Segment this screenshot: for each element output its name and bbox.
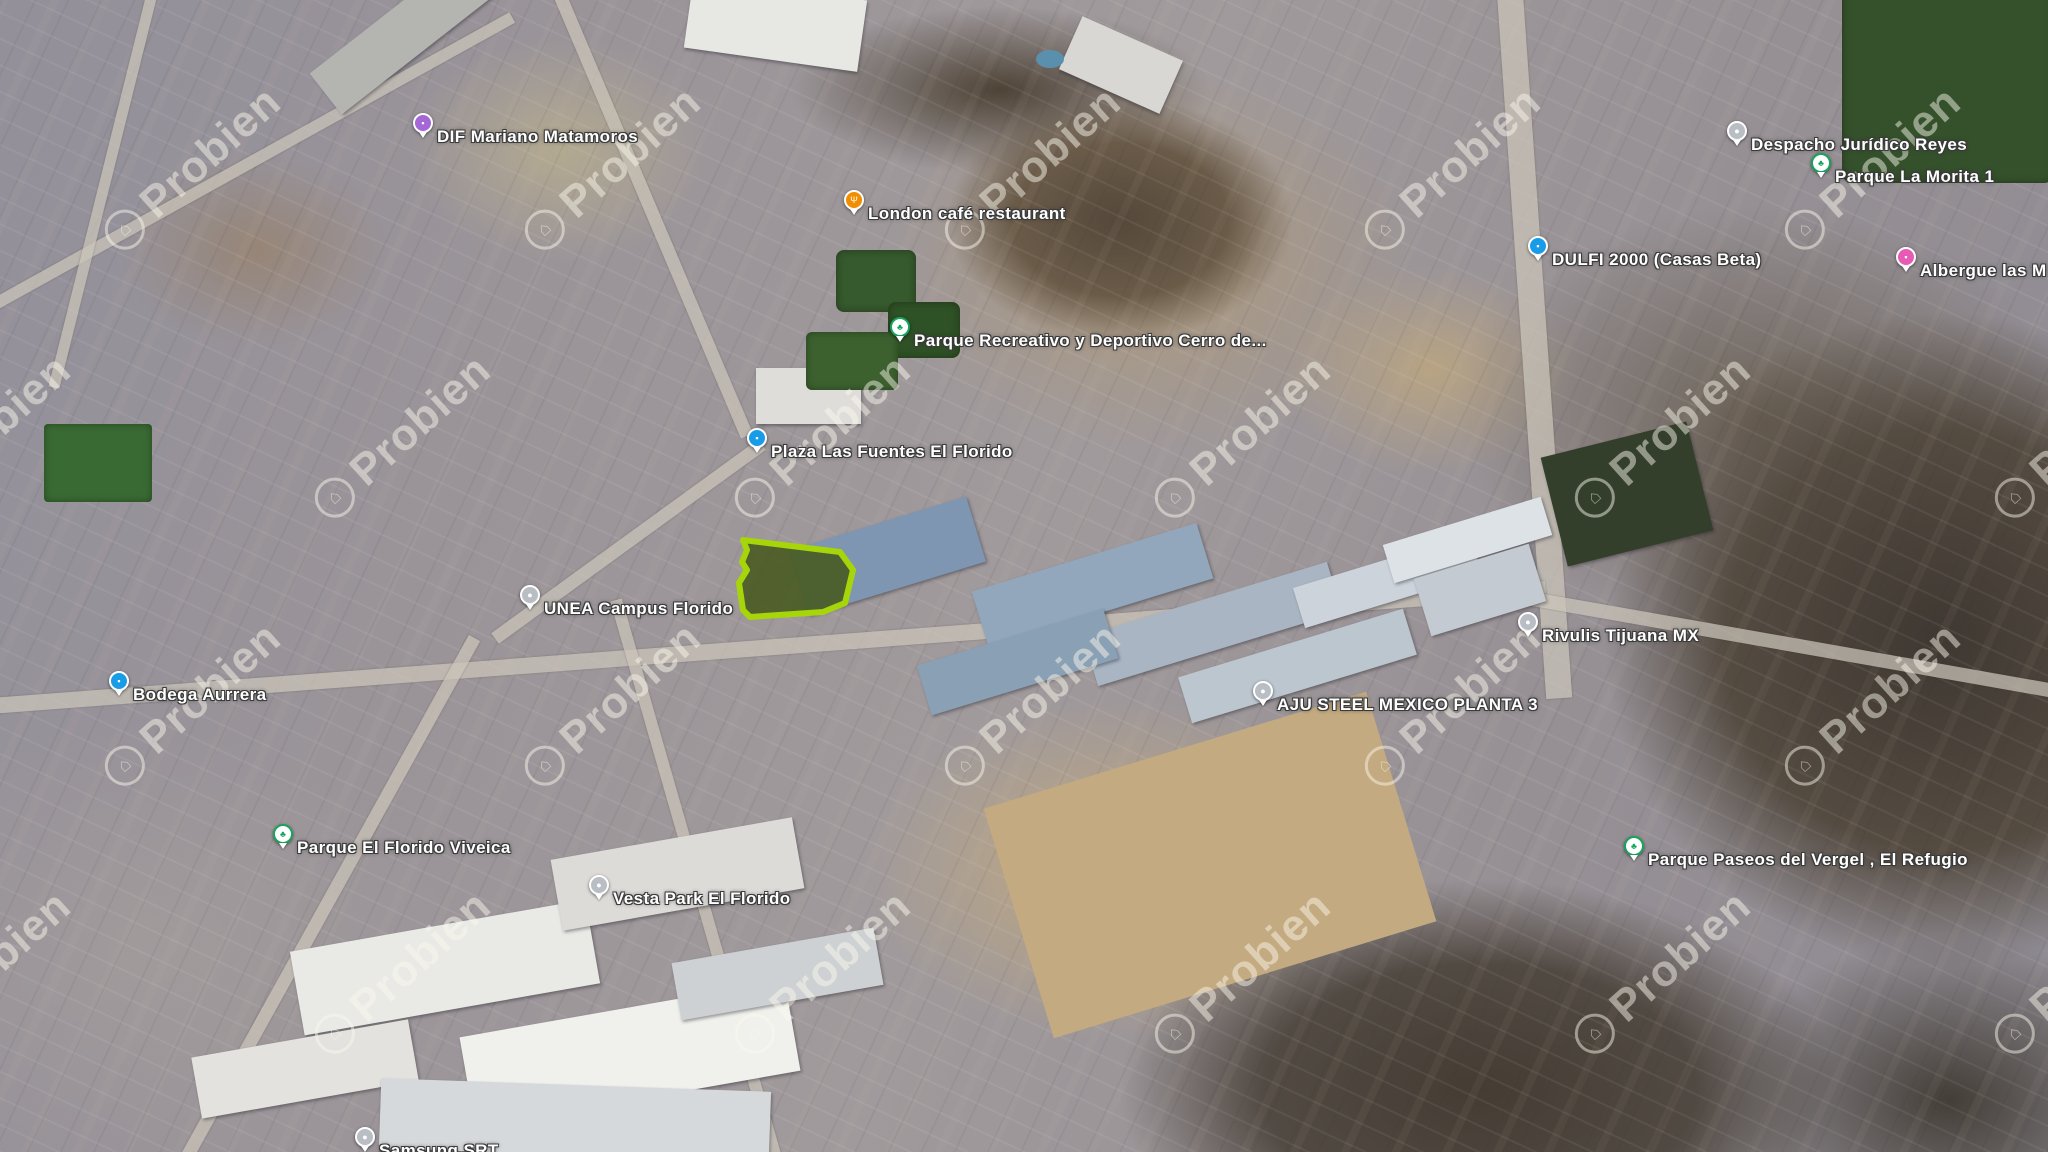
community-pin-icon[interactable]: ▪ — [413, 113, 433, 133]
place-label: London café restaurant — [868, 204, 1066, 224]
business-blue-pin-icon[interactable]: ▪ — [1528, 236, 1548, 256]
pin-pointer — [1733, 140, 1741, 146]
park-pin-icon[interactable]: ♣ — [1624, 836, 1644, 856]
business-pin-icon[interactable]: ● — [355, 1127, 375, 1147]
pin-pointer — [595, 894, 603, 900]
pin-pointer — [361, 1146, 369, 1152]
pin-pointer — [1534, 255, 1542, 261]
business-pin-icon[interactable]: ● — [1253, 681, 1273, 701]
markers-layer: ▪DIF Mariano MatamorosΨLondon café resta… — [0, 0, 2048, 1152]
park-pin-icon[interactable]: ♣ — [273, 824, 293, 844]
place-label: Vesta Park El Florido — [613, 889, 791, 909]
place-label: UNEA Campus Florido — [544, 599, 733, 619]
school-pin-icon[interactable]: ● — [520, 585, 540, 605]
place-label: DIF Mariano Matamoros — [437, 127, 638, 147]
place-label: Parque Paseos del Vergel , El Refugio — [1648, 850, 1968, 870]
place-label: DULFI 2000 (Casas Beta) — [1552, 250, 1762, 270]
place-label: Samsung SRT — [379, 1141, 499, 1152]
shopping-pin-icon[interactable]: ▪ — [747, 428, 767, 448]
pin-pointer — [1902, 266, 1910, 272]
place-label: Rivulis Tijuana MX — [1542, 626, 1699, 646]
park-pin-icon[interactable]: ♣ — [890, 317, 910, 337]
pin-pointer — [1259, 700, 1267, 706]
lodging-pin-icon[interactable]: ▪ — [1896, 247, 1916, 267]
place-label: AJU STEEL MEXICO PLANTA 3 — [1277, 695, 1538, 715]
place-label: Plaza Las Fuentes El Florido — [771, 442, 1013, 462]
pin-pointer — [753, 447, 761, 453]
place-label: Parque Recreativo y Deportivo Cerro de..… — [914, 331, 1267, 351]
satellite-map[interactable]: ⌂Probien⌂Probien⌂Probien⌂Probien⌂Probien… — [0, 0, 2048, 1152]
place-label: Bodega Aurrera — [133, 685, 266, 705]
pin-pointer — [1524, 631, 1532, 637]
pin-pointer — [896, 336, 904, 342]
park-pin-icon[interactable]: ♣ — [1811, 153, 1831, 173]
place-label: Despacho Jurídico Reyes — [1751, 135, 1967, 155]
pin-pointer — [279, 843, 287, 849]
business-pin-icon[interactable]: ● — [1727, 121, 1747, 141]
pin-pointer — [1630, 855, 1638, 861]
business-pin-icon[interactable]: ● — [1518, 612, 1538, 632]
grocery-pin-icon[interactable]: ▪ — [109, 671, 129, 691]
pin-pointer — [526, 604, 534, 610]
place-label: Parque El Florido Viveica — [297, 838, 511, 858]
place-label: Parque La Morita 1 — [1835, 167, 1994, 187]
place-label: Albergue las M — [1920, 261, 2047, 281]
pin-pointer — [850, 209, 858, 215]
pin-pointer — [1817, 172, 1825, 178]
pin-pointer — [115, 690, 123, 696]
restaurant-pin-icon[interactable]: Ψ — [844, 190, 864, 210]
business-pin-icon[interactable]: ● — [589, 875, 609, 895]
pin-pointer — [419, 132, 427, 138]
